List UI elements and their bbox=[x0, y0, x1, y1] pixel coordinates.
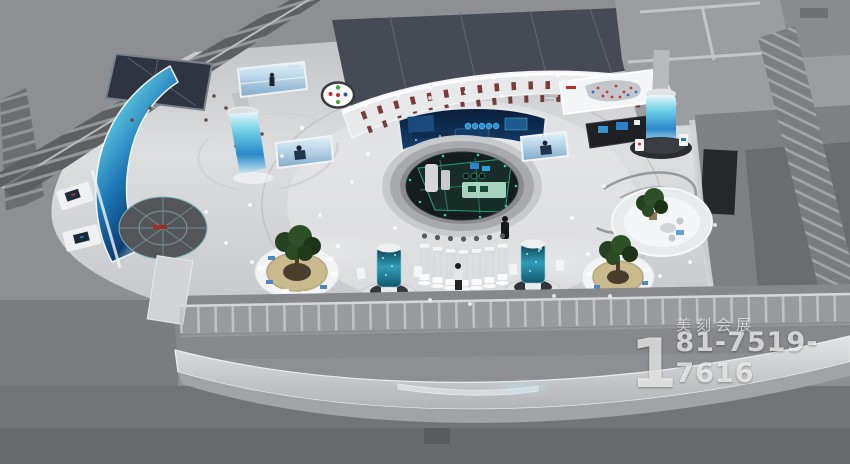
emblem-logo-mark bbox=[153, 225, 167, 229]
map-title-mark bbox=[566, 86, 576, 89]
wall-screen-person-right bbox=[521, 132, 568, 161]
entrance-step bbox=[424, 428, 450, 444]
info-card bbox=[508, 264, 517, 276]
info-card bbox=[555, 260, 564, 272]
exhibition-hall-render: 美刻会展 1 81-7519-7616 bbox=[0, 0, 850, 464]
scene-canvas bbox=[0, 0, 850, 464]
brand-emblem bbox=[322, 83, 354, 108]
lounge-seat bbox=[669, 235, 676, 242]
floor-emblem bbox=[119, 197, 207, 259]
parapet-glow bbox=[488, 378, 556, 398]
room-vent bbox=[800, 8, 828, 18]
wall-caption bbox=[544, 95, 558, 97]
glass-floor-sandtable bbox=[382, 135, 542, 237]
lounge-seat bbox=[677, 218, 684, 225]
figure-on-screen bbox=[270, 73, 274, 77]
info-card bbox=[356, 267, 365, 279]
lounge-table bbox=[660, 223, 676, 233]
wall-caption bbox=[544, 99, 554, 101]
info-card bbox=[413, 266, 422, 278]
lounge-device bbox=[676, 230, 684, 235]
